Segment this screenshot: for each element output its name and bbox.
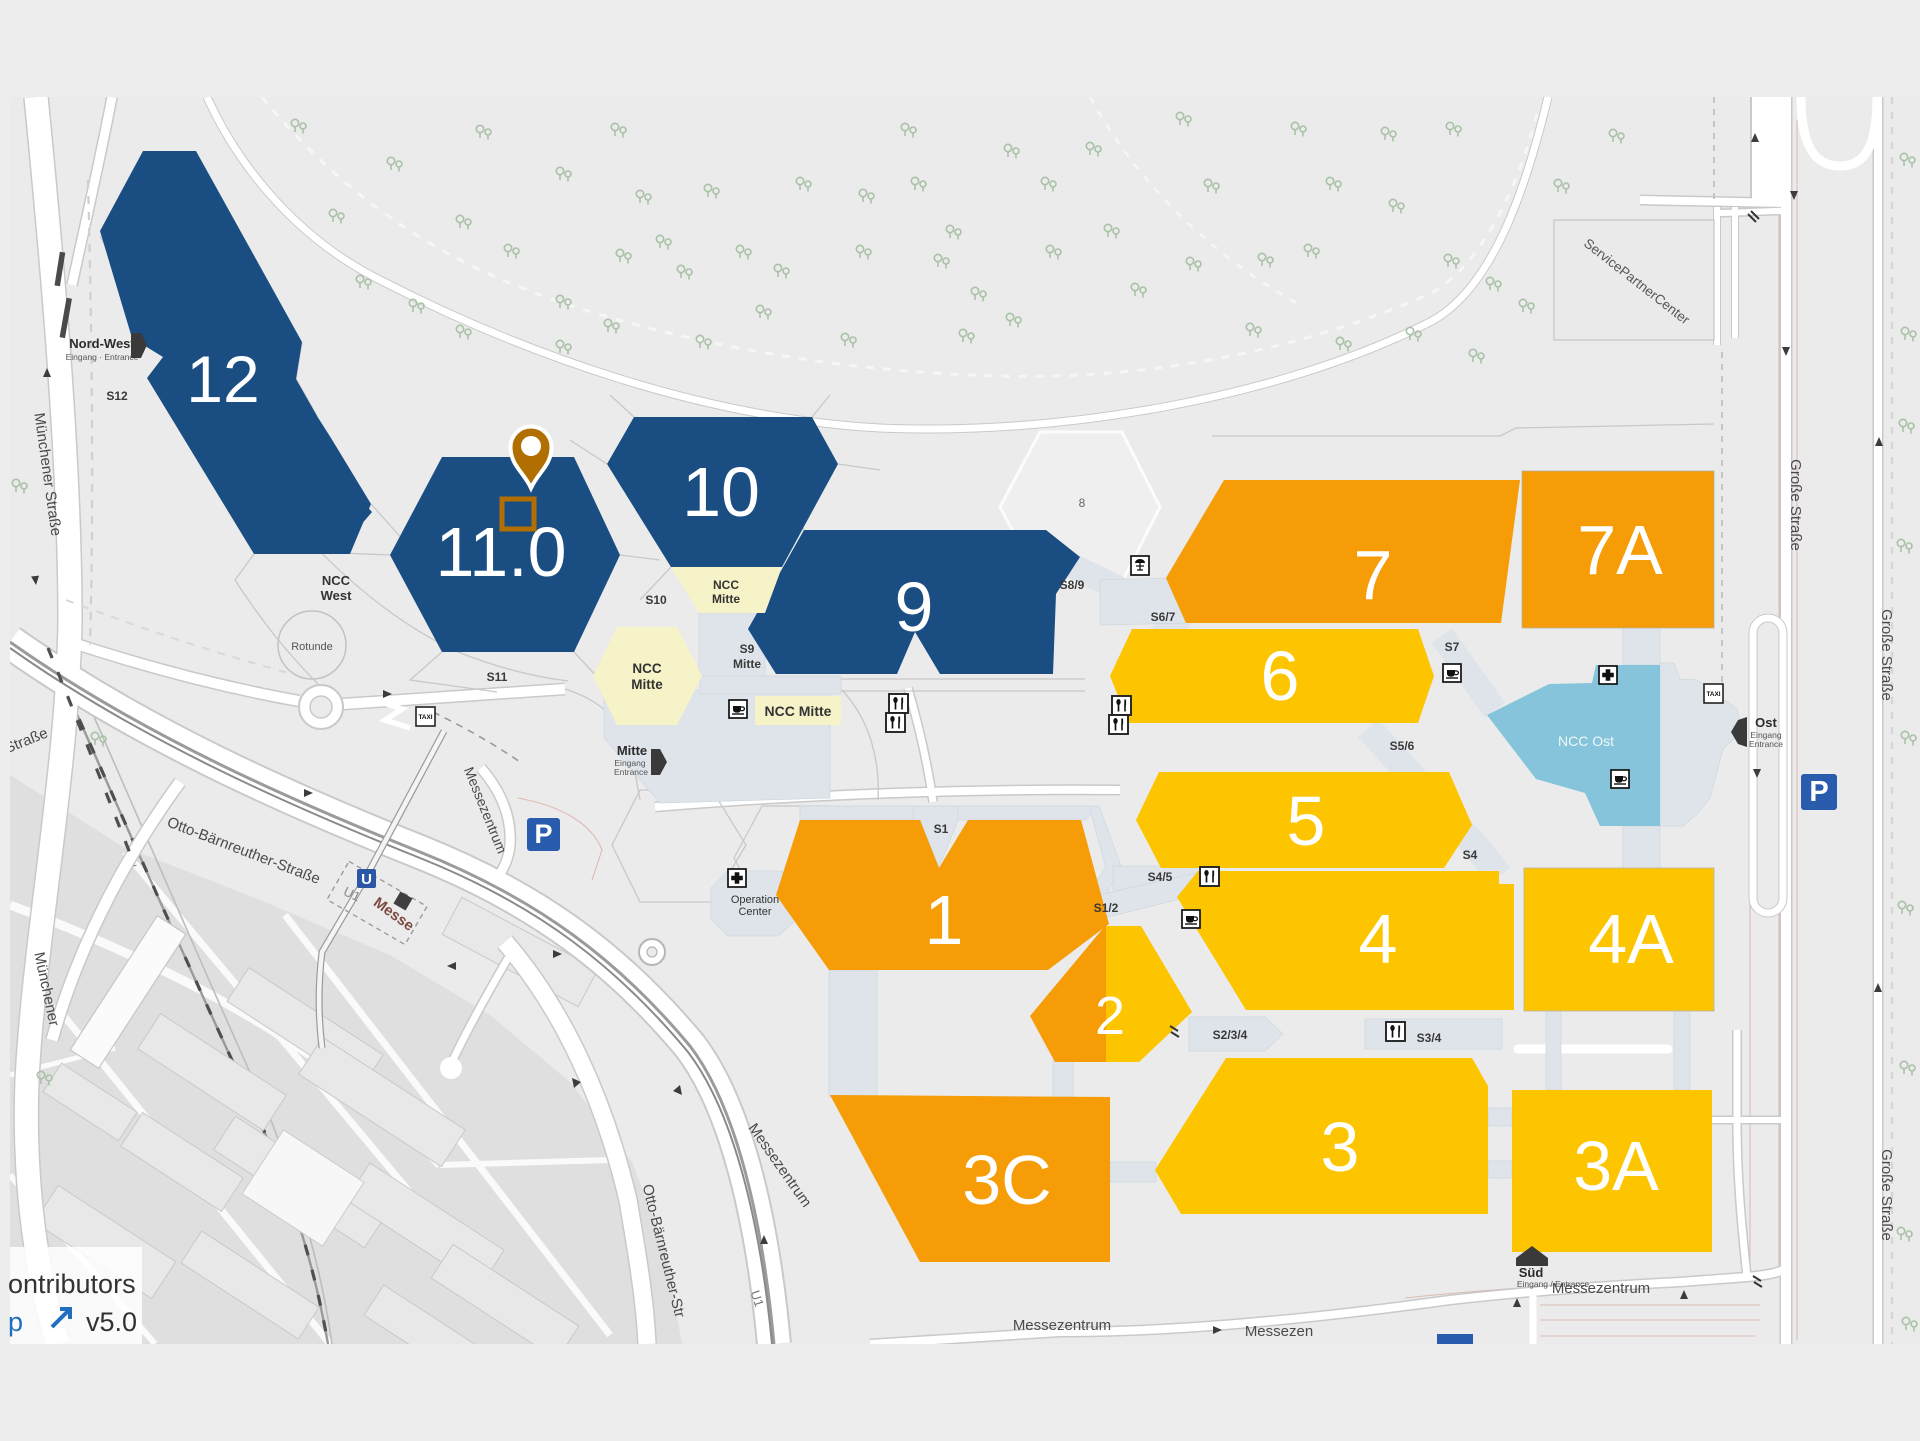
svg-text:S7: S7 bbox=[1445, 640, 1460, 654]
svg-text:S8/9: S8/9 bbox=[1060, 578, 1085, 592]
svg-text:NCC: NCC bbox=[322, 573, 351, 588]
svg-text:Operation: Operation bbox=[731, 894, 779, 906]
svg-text:v5.0: v5.0 bbox=[86, 1307, 137, 1337]
svg-text:Messezentrum: Messezentrum bbox=[1013, 1317, 1111, 1334]
svg-text:TAXI: TAXI bbox=[418, 714, 432, 721]
svg-text:2: 2 bbox=[1095, 986, 1125, 1046]
svg-text:7A: 7A bbox=[1577, 511, 1663, 589]
svg-text:4A: 4A bbox=[1588, 900, 1674, 978]
svg-text:1: 1 bbox=[925, 881, 964, 959]
svg-text:Mitte: Mitte bbox=[617, 743, 647, 758]
svg-text:Große Straße: Große Straße bbox=[1787, 459, 1804, 551]
svg-text:NCC: NCC bbox=[713, 578, 739, 592]
svg-text:U: U bbox=[361, 871, 372, 888]
svg-text:5: 5 bbox=[1287, 782, 1326, 860]
svg-text:Mitte: Mitte bbox=[631, 677, 663, 692]
svg-text:10: 10 bbox=[682, 453, 760, 531]
svg-text:8: 8 bbox=[1079, 496, 1086, 510]
svg-text:S10: S10 bbox=[645, 593, 667, 607]
svg-text:Süd: Süd bbox=[1519, 1265, 1544, 1280]
svg-text:S4/5: S4/5 bbox=[1148, 870, 1173, 884]
svg-text:S11: S11 bbox=[487, 670, 508, 684]
svg-text:NCC Ost: NCC Ost bbox=[1558, 733, 1614, 749]
svg-text:9: 9 bbox=[895, 568, 934, 646]
svg-text:S4: S4 bbox=[1463, 848, 1478, 862]
svg-text:S5/6: S5/6 bbox=[1390, 739, 1415, 753]
svg-text:Messezen: Messezen bbox=[1245, 1323, 1313, 1340]
svg-text:TAXI: TAXI bbox=[1706, 691, 1720, 698]
svg-text:NCC: NCC bbox=[632, 661, 661, 676]
svg-text:Eingang / Entrance: Eingang / Entrance bbox=[1517, 1279, 1590, 1289]
svg-text:Rotunde: Rotunde bbox=[291, 641, 333, 653]
svg-text:Große Straße: Große Straße bbox=[1878, 1149, 1895, 1241]
svg-text:S1/2: S1/2 bbox=[1094, 901, 1119, 915]
svg-text:S9: S9 bbox=[740, 642, 755, 656]
svg-text:6: 6 bbox=[1261, 637, 1300, 715]
svg-text:Nord-West: Nord-West bbox=[69, 336, 135, 351]
svg-text:4: 4 bbox=[1359, 900, 1398, 978]
svg-text:p: p bbox=[8, 1307, 23, 1337]
svg-text:Ost: Ost bbox=[1755, 715, 1777, 730]
svg-text:S1: S1 bbox=[934, 822, 949, 836]
svg-text:West: West bbox=[321, 588, 352, 603]
svg-text:12: 12 bbox=[186, 342, 259, 416]
svg-text:Entrance: Entrance bbox=[1749, 739, 1783, 749]
svg-text:Mitte: Mitte bbox=[733, 657, 761, 671]
svg-text:Entrance: Entrance bbox=[614, 767, 648, 777]
svg-text:S12: S12 bbox=[106, 389, 128, 403]
svg-text:Center: Center bbox=[738, 906, 771, 918]
svg-text:S6/7: S6/7 bbox=[1151, 610, 1176, 624]
svg-text:3A: 3A bbox=[1573, 1127, 1659, 1205]
svg-text:P: P bbox=[534, 819, 552, 849]
svg-text:S2/3/4: S2/3/4 bbox=[1213, 1028, 1248, 1042]
svg-text:P: P bbox=[1809, 776, 1828, 808]
svg-text:3C: 3C bbox=[962, 1141, 1051, 1219]
svg-text:3: 3 bbox=[1321, 1108, 1360, 1186]
svg-text:ontributors: ontributors bbox=[8, 1269, 136, 1299]
svg-text:S3/4: S3/4 bbox=[1417, 1031, 1442, 1045]
svg-text:Mitte: Mitte bbox=[712, 592, 740, 606]
svg-text:7: 7 bbox=[1354, 536, 1393, 614]
svg-text:Große Straße: Große Straße bbox=[1878, 609, 1895, 701]
svg-text:Eingang · Entrance: Eingang · Entrance bbox=[66, 352, 139, 362]
svg-text:NCC Mitte: NCC Mitte bbox=[765, 703, 832, 719]
